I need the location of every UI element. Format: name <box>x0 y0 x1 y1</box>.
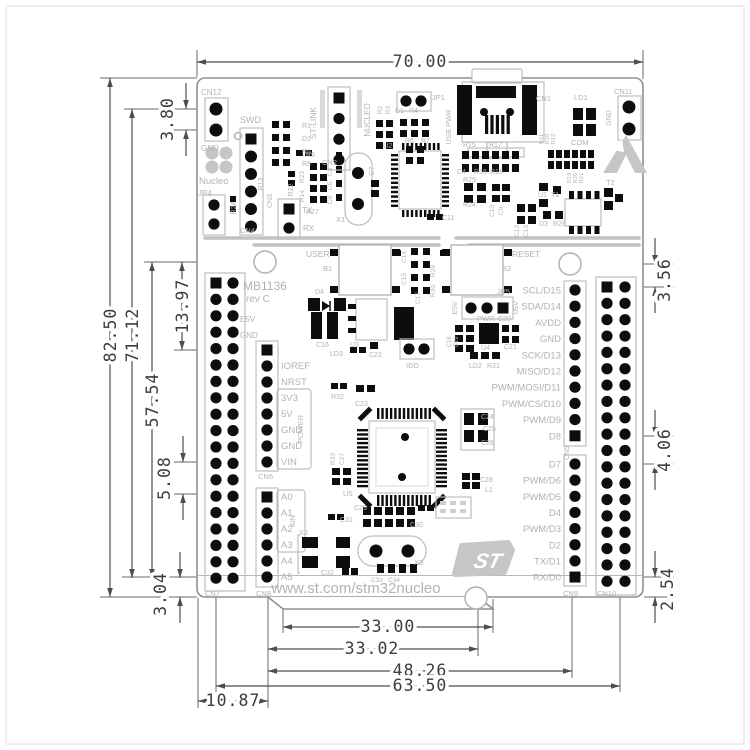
nucleo-board-mechanical-drawing: ST CN12GNDSWDCN4NucleoJP4R26R13CN3TXRXR1… <box>0 0 750 750</box>
label-pins-digital_top-9: D8 <box>549 431 561 442</box>
smd-pad <box>512 336 519 343</box>
pin <box>261 376 272 387</box>
smd-pad <box>615 194 623 202</box>
label-pins-digital_bottom-5: D2 <box>549 540 561 551</box>
dimension-arrow <box>611 683 620 689</box>
pin <box>227 441 238 452</box>
label-pins-digital_bottom-0: D7 <box>549 460 561 471</box>
smd-pad <box>502 195 510 202</box>
smd-pad <box>385 519 393 527</box>
pin <box>619 445 630 456</box>
label-silk-c1: C1 <box>395 108 404 115</box>
chip-pin <box>436 472 447 474</box>
pin <box>227 556 238 567</box>
chip-pin <box>436 463 447 465</box>
label-pins-power-6: VIN <box>281 457 297 468</box>
label-silk-usb_pwr: USB PWR <box>444 109 453 145</box>
chip-pin <box>569 191 574 199</box>
chip-pin <box>442 168 449 170</box>
smd-pad <box>283 147 290 154</box>
chip-pin <box>436 476 447 478</box>
smd-pad <box>543 211 551 219</box>
smd-pad <box>302 556 318 568</box>
smd-pad <box>351 568 358 575</box>
pin <box>601 559 612 570</box>
label-silk-c15: C15 <box>401 273 408 285</box>
smd-pad <box>573 108 583 120</box>
dimension-value: 13.97 <box>173 279 192 334</box>
chip-pin <box>416 495 418 506</box>
dimension-value: 33.02 <box>345 639 400 658</box>
pin <box>619 396 630 407</box>
smd-pad <box>272 134 279 141</box>
label-silk-r33: R33 <box>330 453 337 465</box>
dimension-width: 70.00 <box>197 52 643 71</box>
smd-pad <box>363 519 371 527</box>
chip-pin <box>442 177 449 179</box>
smd-pad <box>472 473 480 480</box>
pin <box>569 333 580 344</box>
smd-pad <box>502 164 509 172</box>
pin <box>569 301 580 312</box>
label-silk-c17: C17 <box>415 292 422 304</box>
smd-pad <box>283 134 290 141</box>
smd-pad <box>512 151 519 159</box>
pin <box>261 440 272 451</box>
smd-pad <box>386 120 393 127</box>
pin-square <box>570 572 581 583</box>
label-silk-cn12: CN12 <box>201 88 222 97</box>
label-silk-swd: SWD <box>240 115 261 125</box>
chip-pin <box>436 485 447 487</box>
smd-pad <box>528 216 536 224</box>
chip-pin <box>442 205 449 207</box>
label-silk-ld3: LD3 <box>330 351 343 358</box>
label-silk-c24: C24 <box>481 414 494 421</box>
pin <box>210 409 221 420</box>
label-pins-analog-1: A1 <box>281 508 293 519</box>
smd-pad <box>442 286 450 293</box>
pin <box>569 555 580 566</box>
usb-contact <box>507 115 510 134</box>
st-logo: ST <box>455 543 512 574</box>
pin <box>210 343 221 354</box>
chip-pin <box>442 200 449 202</box>
chip-pin <box>391 154 398 156</box>
smd-pad <box>230 196 236 202</box>
pin-square <box>570 430 581 441</box>
smd-pad <box>423 274 430 281</box>
usb-connector-shield <box>522 85 537 135</box>
label-silk-c6: C6 <box>327 181 334 190</box>
smd-pad <box>556 161 562 169</box>
smd-pad <box>477 183 486 191</box>
smd-pad <box>342 568 349 575</box>
mounting-hole <box>465 587 487 609</box>
smd-pad <box>455 325 463 332</box>
smd-pad <box>367 385 375 392</box>
chip-pin <box>357 455 368 457</box>
dimension-arrow <box>177 597 183 606</box>
label-silk-jp4: JP4 <box>198 189 212 198</box>
chip-pin <box>357 451 368 453</box>
pin-square <box>334 93 345 104</box>
label-silk-cn11: CN11 <box>614 87 633 96</box>
smd-pad <box>407 507 415 515</box>
pin <box>261 360 272 371</box>
smd-pad <box>539 199 548 207</box>
dimension-arrow <box>652 568 658 577</box>
label-silk-c22: C22 <box>369 352 382 359</box>
dimension-value: 3.04 <box>151 572 170 616</box>
chip-pin <box>442 172 449 174</box>
pin <box>210 103 223 116</box>
pin-square <box>602 282 613 293</box>
chip-pin <box>436 468 447 470</box>
pin <box>465 302 476 313</box>
smd-pad <box>392 286 400 293</box>
pin <box>569 317 580 328</box>
smd-pad <box>417 157 424 164</box>
chip-pin <box>424 210 426 217</box>
pin <box>601 461 612 472</box>
smd-pad <box>492 184 500 191</box>
pin <box>210 573 221 584</box>
dimension-arrow <box>216 683 225 689</box>
smd-pad <box>492 195 500 202</box>
dimension-arrow <box>179 262 185 271</box>
chip-u3-body <box>356 299 387 340</box>
pin <box>227 409 238 420</box>
pin-square <box>498 303 509 314</box>
pin <box>623 123 636 136</box>
smd-pad <box>423 287 430 294</box>
pin <box>619 494 630 505</box>
tiny-mark <box>460 501 466 505</box>
chip-pin <box>391 200 398 202</box>
chip-pin <box>420 210 422 217</box>
label-silk-r27: R27 <box>306 209 319 216</box>
pin <box>569 491 580 502</box>
smd-pad <box>328 514 335 520</box>
pin <box>227 458 238 469</box>
pin <box>601 543 612 554</box>
label-silk-r8: R8 <box>302 161 311 168</box>
pin <box>210 327 221 338</box>
pin <box>569 365 580 376</box>
smd-pad <box>517 204 525 212</box>
label-branding-nucleo: Nucleo <box>199 176 229 187</box>
pin <box>227 507 238 518</box>
smd-pad <box>539 183 548 191</box>
pin-square <box>246 134 257 145</box>
label-silk-x1: X1 <box>336 215 345 224</box>
chip-pin <box>377 408 379 419</box>
smd-pad <box>308 298 320 311</box>
board-drawing-page: ST CN12GNDSWDCN4NucleoJP4R26R13CN3TXRXR1… <box>0 0 750 750</box>
label-silk-c9: C9 <box>498 206 505 215</box>
label-pins-digital_bottom-4: PWM/D3 <box>523 524 561 535</box>
pin <box>619 380 630 391</box>
smd-pad <box>492 151 499 159</box>
dimension-arrow <box>563 668 572 674</box>
smd-pad <box>580 161 586 169</box>
smd-pad <box>464 183 473 191</box>
dimension-r_top: 3.56 <box>652 238 674 313</box>
pin <box>569 458 580 469</box>
label-silk-r16: R16 <box>474 169 487 176</box>
smd-pad <box>336 194 342 201</box>
pin <box>619 527 630 538</box>
label-silk-com: COM <box>571 138 589 147</box>
smd-pad <box>572 161 578 169</box>
pin <box>227 310 238 321</box>
pin <box>619 543 630 554</box>
smd-pad <box>310 185 317 192</box>
dimension-h_pins: 71.12 <box>123 109 142 578</box>
label-silk-b2: B2 <box>502 264 511 273</box>
label-pins-power-4: GND <box>281 425 302 436</box>
smd-pad <box>336 180 342 187</box>
label-silk-r29: R29 <box>430 265 437 277</box>
label-silk-pwr: PWR <box>477 314 495 323</box>
dimension-value: 2.54 <box>658 567 677 611</box>
pin <box>569 349 580 360</box>
chip-pin <box>424 495 426 506</box>
label-silk-r32: R32 <box>331 394 344 401</box>
label-silk-d4: D4 <box>315 289 324 296</box>
label-branding-url: www.st.com/stm32nucleo <box>270 580 440 597</box>
label-pins-analog-5: A5 <box>281 572 293 583</box>
chip-pin <box>442 154 449 156</box>
pin <box>227 376 238 387</box>
smd-pad <box>343 478 351 485</box>
tiny-mark <box>450 509 456 513</box>
chip-pin <box>578 226 583 234</box>
pin <box>245 203 257 215</box>
chip-pin <box>442 182 449 184</box>
chip-pin <box>436 446 447 448</box>
smd-pad <box>466 345 474 352</box>
label-silk-r31: R31 <box>487 363 500 370</box>
pin <box>227 474 238 485</box>
tiny-mark <box>440 509 446 513</box>
label-silk-u2: U2 <box>383 141 393 150</box>
pin <box>619 510 630 521</box>
smd-pad <box>481 352 489 359</box>
label-silk-c31: C31 <box>340 517 353 524</box>
smd-pad <box>388 564 395 573</box>
pin <box>333 134 344 145</box>
pin <box>601 478 612 489</box>
label-silk-gnd_cn12: GND <box>201 144 219 153</box>
pin-square <box>211 278 222 289</box>
label-silk-gnd_cn11: GND <box>606 110 613 126</box>
dimension-value: 70.00 <box>393 52 448 71</box>
smd-pad <box>548 150 554 158</box>
smd-pad <box>302 537 318 548</box>
smd-pad <box>385 507 393 515</box>
smd-pad <box>310 196 317 203</box>
dimension-h_inner: 57.54 <box>143 262 162 578</box>
label-pins-digital_top-7: PWM/CS/D10 <box>502 399 561 410</box>
dimension-b_tab: 33.00 <box>283 617 493 636</box>
dimension-arrow <box>197 59 206 65</box>
label-silk-r6: R6 <box>405 138 414 145</box>
label-silk-ld1: LD1 <box>574 93 588 102</box>
dimension-r_bottom: 2.54 <box>652 551 677 623</box>
smd-pad <box>327 312 338 339</box>
label-branding-board_rev: rev C <box>246 294 270 305</box>
pin-square <box>284 204 295 215</box>
label-silk-r3: R3 <box>385 105 392 114</box>
chip-pin <box>386 495 388 506</box>
label-silk-r18: R18 <box>490 169 503 176</box>
dimension-arrow <box>469 646 478 652</box>
pin <box>569 475 580 486</box>
chip-pin <box>429 495 431 506</box>
pin <box>619 330 630 341</box>
label-silk-r9: R9 <box>306 152 315 159</box>
pin <box>400 95 411 106</box>
dimension-arrow <box>149 262 155 271</box>
smd-pad <box>411 274 418 281</box>
pin <box>619 576 630 587</box>
pin <box>619 314 630 325</box>
pin <box>210 540 221 551</box>
chip-pin <box>357 438 368 440</box>
smd-pad <box>588 150 594 158</box>
pin <box>261 392 272 403</box>
chip-pin <box>586 191 591 199</box>
label-silk-u5v: U5V <box>513 301 520 315</box>
usb-contact <box>501 115 504 134</box>
dimension-arrow <box>107 588 113 597</box>
usb-contact <box>490 115 493 134</box>
chip-pin <box>442 163 449 165</box>
dimension-b_full: 63.50 <box>216 676 620 695</box>
label-silk-u4: U4 <box>481 345 490 352</box>
label-silk-c10: C10 <box>489 205 496 217</box>
label-silk-e5v_jp: E5V <box>452 301 459 314</box>
pin <box>601 363 612 374</box>
label-silk-cn6: CN6 <box>258 472 273 481</box>
smd-pad <box>466 335 474 342</box>
label-silk-c7: C7 <box>369 166 376 175</box>
pin <box>481 302 492 313</box>
pin <box>227 392 238 403</box>
chip-pin <box>403 408 405 419</box>
smd-pad <box>517 216 525 224</box>
label-silk-reset: RESET <box>512 249 540 259</box>
pin <box>601 347 612 358</box>
label-silk-cn10: CN10 <box>597 589 616 598</box>
label-silk-c8: C8 <box>327 195 334 204</box>
chip-pin <box>348 304 356 309</box>
label-silk-r25: R25 <box>463 177 476 184</box>
dimension-b_left: 10.87 <box>198 691 268 710</box>
label-pins-digital_top-4: SCK/D13 <box>521 350 561 361</box>
smd-pad <box>423 248 430 255</box>
label-silk-c20: C20 <box>498 316 511 323</box>
dimension-arrow <box>183 130 189 139</box>
smd-pad <box>376 142 383 149</box>
label-silk-r23: R23 <box>299 171 306 183</box>
smd-pad <box>462 151 469 159</box>
mounting-hole <box>254 251 276 273</box>
label-silk-c4: C4 <box>457 169 466 176</box>
pin <box>601 445 612 456</box>
pin <box>210 458 221 469</box>
chip-pin <box>381 495 383 506</box>
smd-pad <box>462 473 470 480</box>
smd-pad <box>588 161 594 169</box>
pin <box>210 376 221 387</box>
label-branding-board_name: MB1136 <box>243 279 287 293</box>
pin <box>261 555 272 566</box>
dimension-h_bottom: 3.04 <box>151 552 183 623</box>
chip-pin <box>357 476 368 478</box>
pin <box>569 284 580 295</box>
chip-pin <box>394 408 396 419</box>
label-silk-stlink: ST-LINK <box>308 107 318 139</box>
label-silk-c12: C12 <box>514 225 521 237</box>
label-silk-c11: C11 <box>442 215 454 222</box>
usb-connector-shield <box>457 85 472 135</box>
chip-pin <box>391 163 398 165</box>
dimension-arrow <box>634 59 643 65</box>
smd-pad <box>464 430 474 442</box>
smd-pad <box>411 119 418 126</box>
label-pins-digital_top-6: PWM/MOSI/D11 <box>492 383 562 394</box>
smd-pad <box>272 147 279 154</box>
usb-pin <box>506 108 514 116</box>
label-pins-analog-4: A4 <box>281 556 293 567</box>
smd-pad <box>502 336 509 343</box>
dimension-arrow <box>283 624 292 630</box>
side-strip <box>320 90 325 128</box>
pin <box>619 559 630 570</box>
label-silk-u5: U5 <box>343 489 353 498</box>
label-silk-c13: C13 <box>523 225 530 237</box>
chip-pin <box>391 191 398 193</box>
usb-contact <box>485 115 488 134</box>
smd-pad <box>272 121 279 128</box>
smd-pad <box>422 119 429 126</box>
pin <box>569 507 580 518</box>
pin <box>210 392 221 403</box>
chip-pin <box>402 210 404 217</box>
smd-pad <box>311 312 322 339</box>
smd-pad <box>334 298 346 311</box>
smd-pad <box>555 211 563 219</box>
pin <box>619 429 630 440</box>
pin <box>227 573 238 584</box>
label-pins-power-1: NRST <box>281 377 307 388</box>
smd-pad <box>288 171 295 177</box>
dimension-arrow <box>259 698 268 704</box>
smd-pad <box>400 130 407 137</box>
smd-pad <box>336 556 350 568</box>
chip-pin <box>377 495 379 506</box>
pin <box>619 412 630 423</box>
label-silk-cn1: CN1 <box>536 94 551 103</box>
pin <box>569 398 580 409</box>
label-pins-digital_top-1: SDA/D14 <box>521 302 561 313</box>
pin <box>623 101 636 114</box>
chip-pin <box>442 159 449 161</box>
label-silk-rx: RX <box>303 224 315 233</box>
